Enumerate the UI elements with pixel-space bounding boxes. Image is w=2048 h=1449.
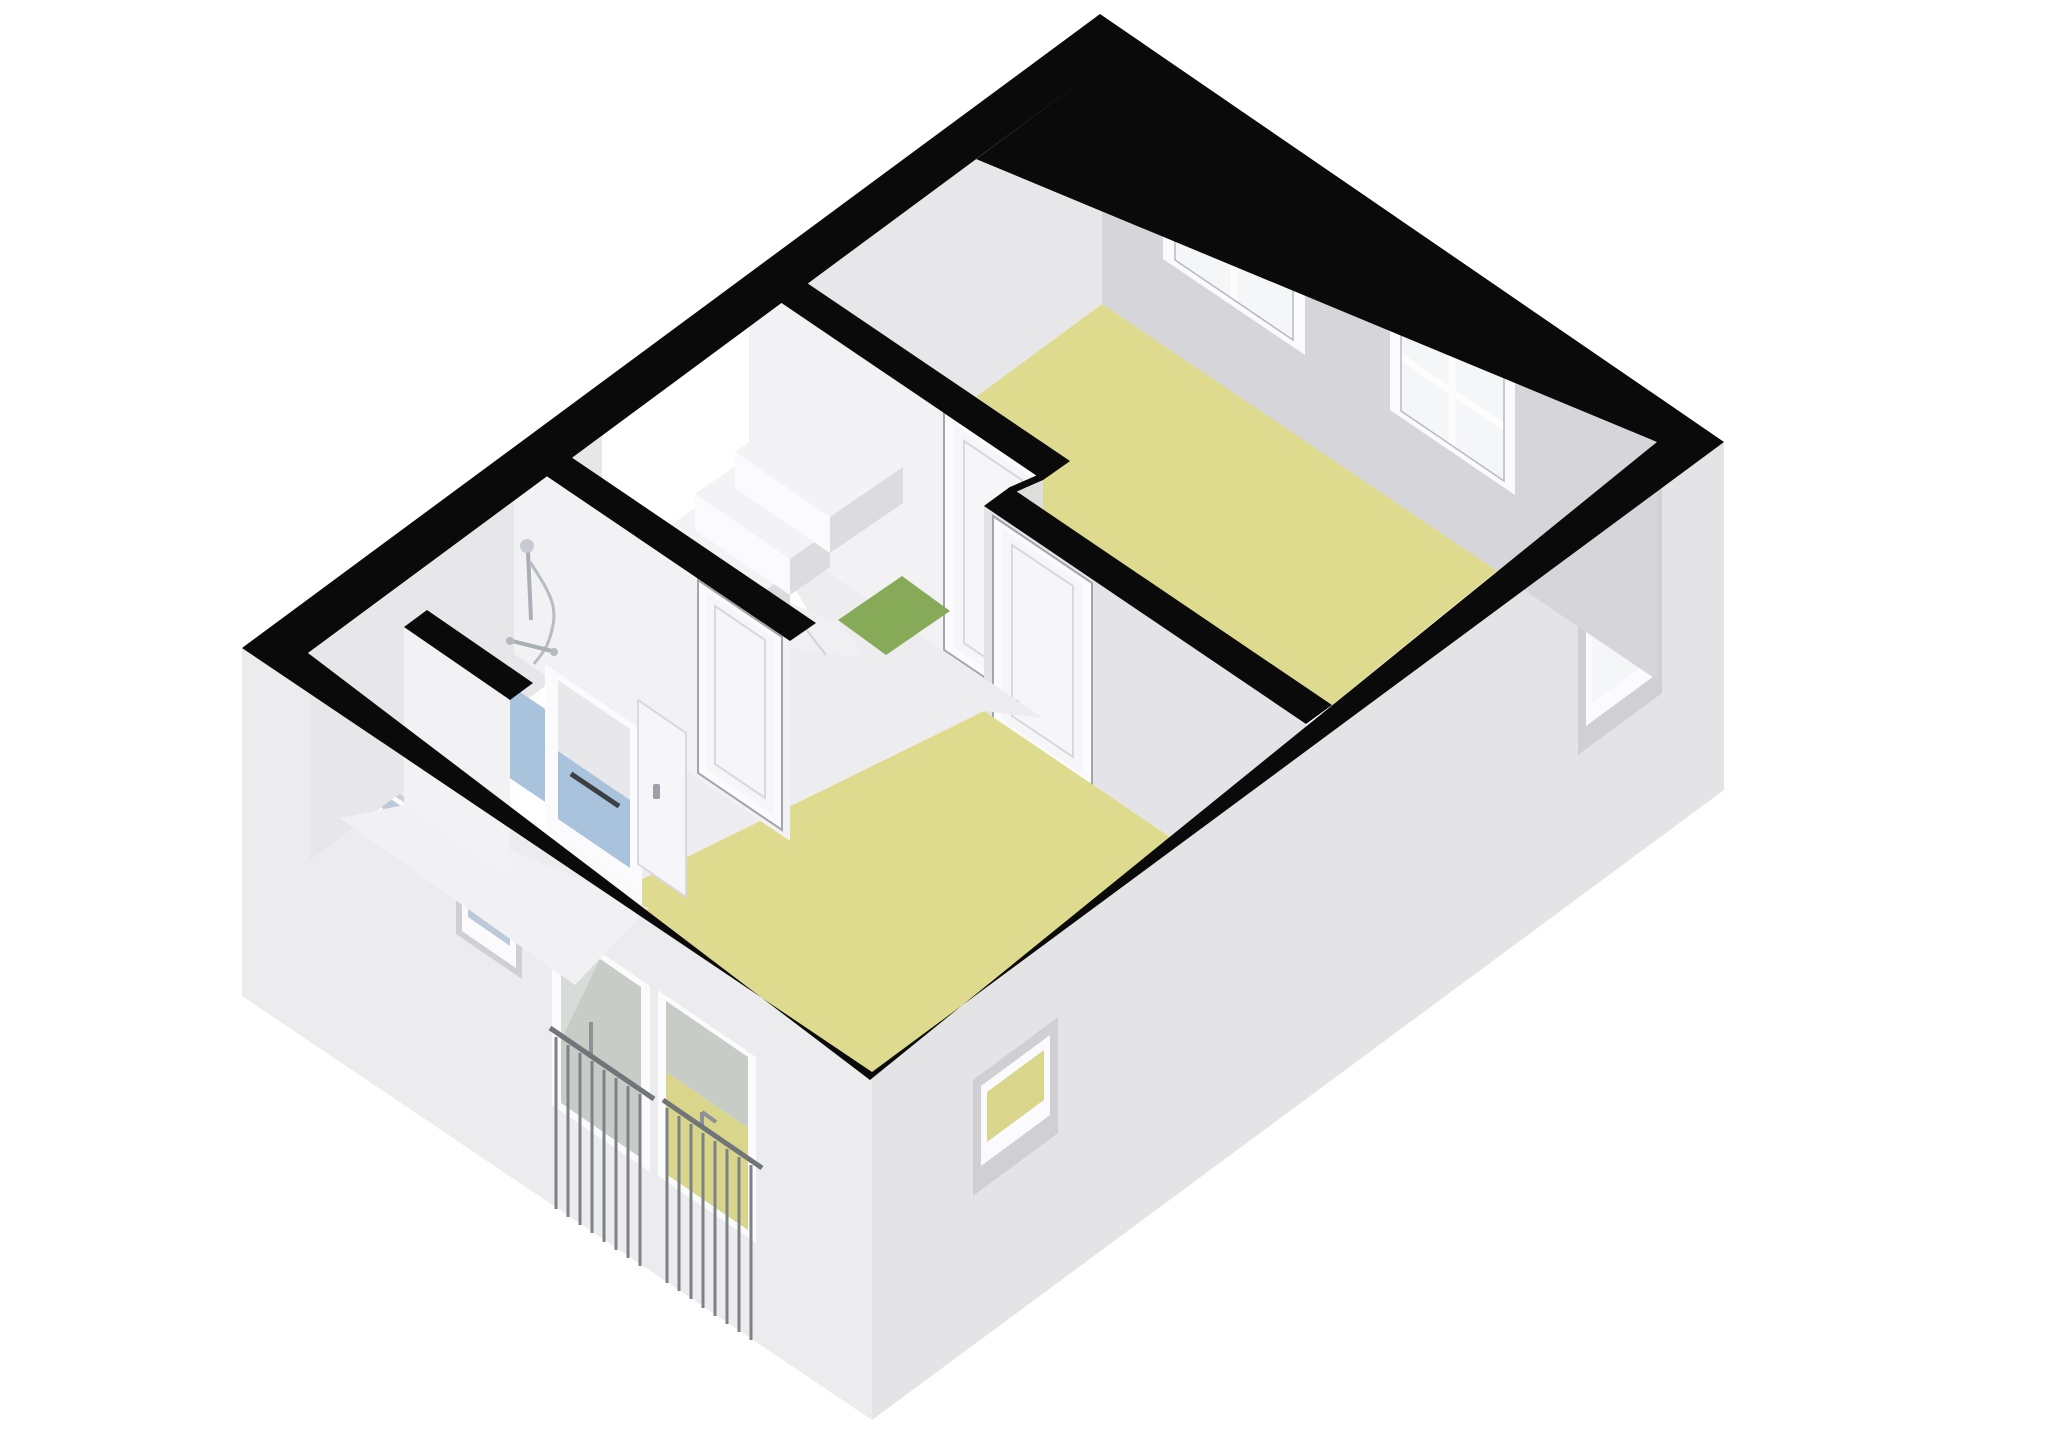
shower-head [520, 539, 534, 553]
sliding-door-handle [653, 784, 660, 799]
mixer-knob-right [550, 648, 558, 656]
sliding-door-panel [638, 700, 686, 897]
floorplan-3d-render [0, 0, 2048, 1449]
mixer-knob-left [506, 637, 514, 645]
